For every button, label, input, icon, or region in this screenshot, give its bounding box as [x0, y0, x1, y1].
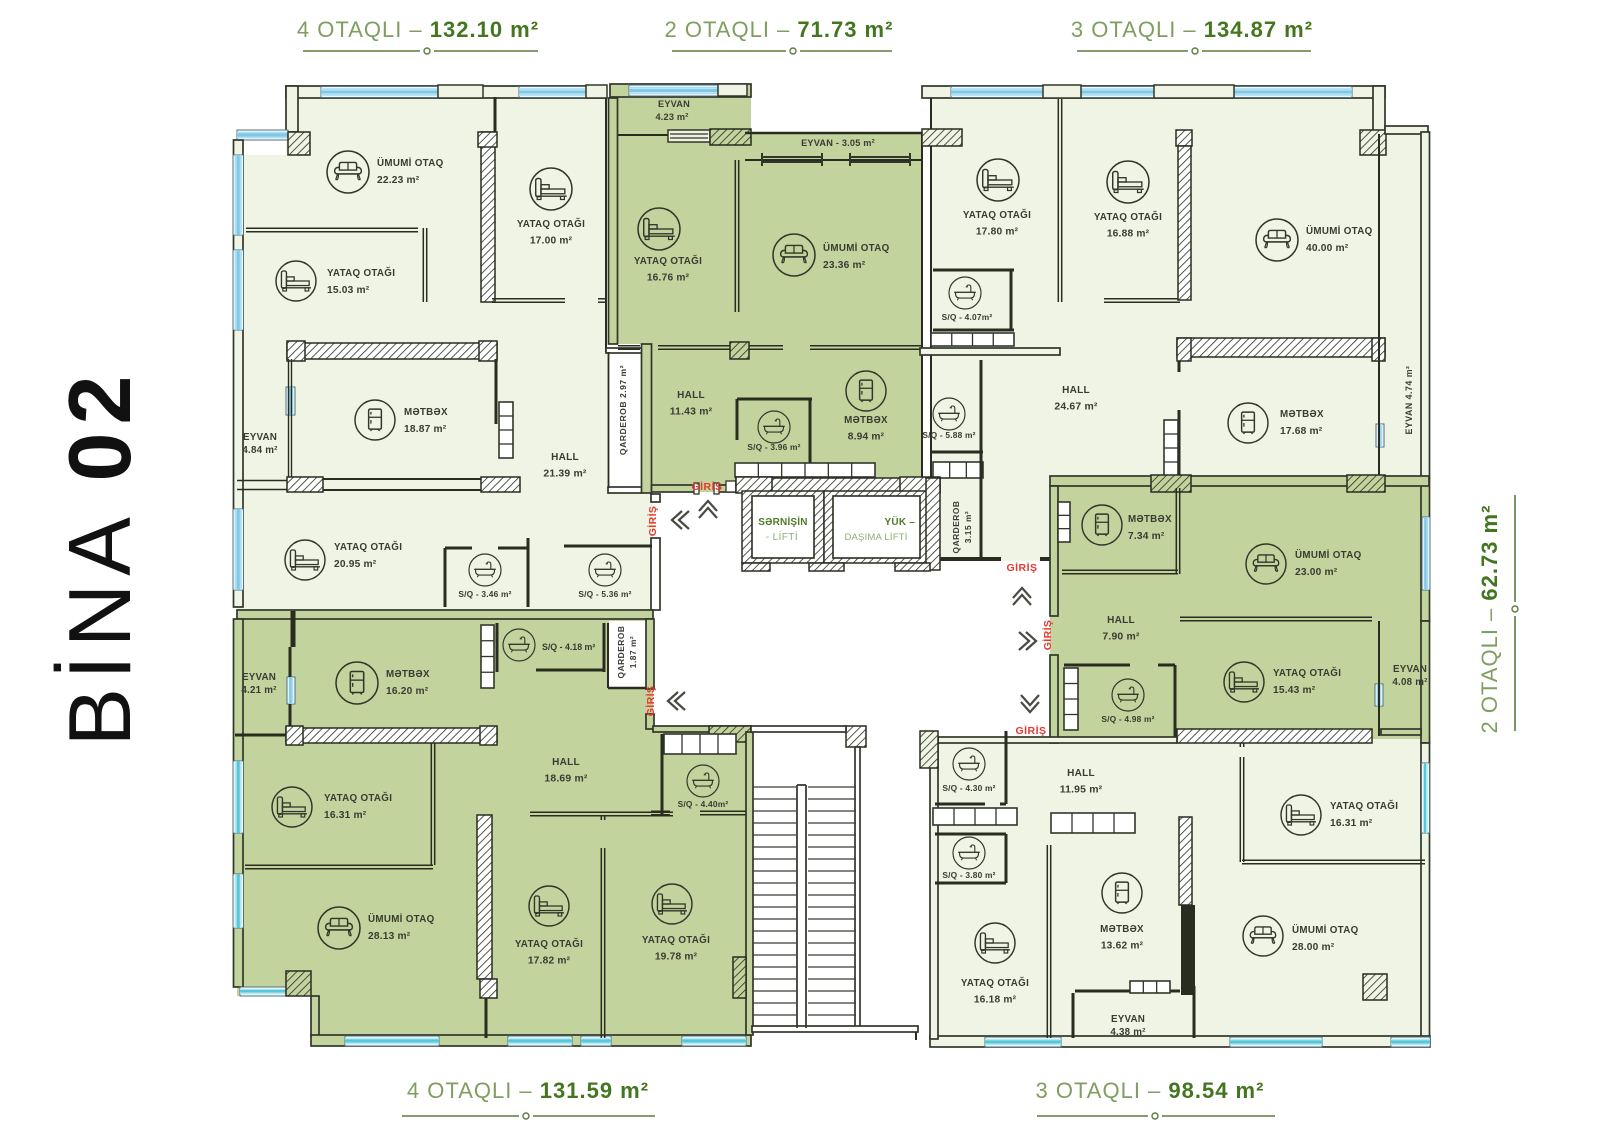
svg-text:EYVAN 4.74 m²: EYVAN 4.74 m² [1404, 366, 1414, 435]
svg-text:15.43 m²: 15.43 m² [1273, 685, 1316, 696]
svg-text:4.08 m²: 4.08 m² [1392, 677, 1428, 688]
svg-text:S/Q - 3.46 m²: S/Q - 3.46 m² [458, 589, 511, 599]
svg-text:17.68 m²: 17.68 m² [1280, 426, 1323, 437]
svg-text:YATAQ OTAĞI: YATAQ OTAĞI [1273, 667, 1341, 679]
svg-text:7.90 m²: 7.90 m² [1102, 632, 1140, 643]
svg-text:YÜK –: YÜK – [885, 515, 916, 528]
svg-text:HALL: HALL [552, 757, 580, 768]
svg-text:EYVAN: EYVAN [658, 99, 690, 109]
svg-text:28.13 m²: 28.13 m² [368, 931, 411, 942]
svg-text:S/Q - 4.18 m²: S/Q - 4.18 m² [542, 642, 595, 652]
svg-text:DAŞIMA LİFTİ: DAŞIMA LİFTİ [844, 532, 907, 543]
svg-text:YATAQ OTAĞI: YATAQ OTAĞI [642, 934, 710, 946]
svg-text:13.62 m²: 13.62 m² [1101, 941, 1144, 952]
svg-text:16.31 m²: 16.31 m² [324, 810, 367, 821]
svg-text:GİRİŞ: GİRİŞ [1006, 561, 1037, 574]
svg-text:23.36 m²: 23.36 m² [823, 260, 866, 271]
svg-text:3 OTAQLI – 134.87 m²: 3 OTAQLI – 134.87 m² [1071, 17, 1313, 42]
svg-text:HALL: HALL [1107, 615, 1135, 626]
svg-text:EYVAN - 3.05 m²: EYVAN - 3.05 m² [801, 138, 875, 148]
svg-text:S/Q - 5.36 m²: S/Q - 5.36 m² [578, 589, 631, 599]
svg-text:16.18 m²: 16.18 m² [974, 995, 1017, 1006]
svg-text:17.00 m²: 17.00 m² [530, 236, 573, 247]
svg-text:YATAQ OTAĞI: YATAQ OTAĞI [634, 255, 702, 267]
svg-text:11.95 m²: 11.95 m² [1060, 785, 1103, 796]
svg-text:YATAQ OTAĞI: YATAQ OTAĞI [334, 541, 402, 553]
svg-text:19.78 m²: 19.78 m² [655, 952, 698, 963]
svg-text:18.69 m²: 18.69 m² [544, 774, 588, 785]
svg-text:MƏTBƏX: MƏTBƏX [1280, 409, 1324, 420]
svg-text:23.00 m²: 23.00 m² [1295, 567, 1338, 578]
svg-text:ÜMUMİ OTAQ: ÜMUMİ OTAQ [1306, 226, 1373, 237]
svg-text:15.03 m²: 15.03 m² [327, 285, 370, 296]
svg-text:40.00 m²: 40.00 m² [1306, 243, 1349, 254]
svg-text:17.82 m²: 17.82 m² [528, 956, 571, 967]
svg-text:ÜMUMİ OTAQ: ÜMUMİ OTAQ [1292, 925, 1359, 936]
svg-text:YATAQ OTAĞI: YATAQ OTAĞI [1330, 800, 1398, 812]
svg-text:BİNA 02: BİNA 02 [50, 368, 149, 747]
svg-text:8.94 m²: 8.94 m² [848, 432, 885, 443]
svg-text:4.84 m²: 4.84 m² [242, 445, 278, 456]
svg-text:HALL: HALL [551, 452, 579, 463]
svg-text:2 OTAQLI – 71.73 m²: 2 OTAQLI – 71.73 m² [665, 17, 894, 42]
svg-text:YATAQ OTAĞI: YATAQ OTAĞI [324, 792, 392, 804]
svg-text:16.76 m²: 16.76 m² [647, 273, 690, 284]
svg-text:SƏRNİŞİN: SƏRNİŞİN [758, 515, 807, 528]
svg-text:4 OTAQLI – 131.59 m²: 4 OTAQLI – 131.59 m² [407, 1078, 649, 1103]
svg-text:ÜMUMİ OTAQ: ÜMUMİ OTAQ [1295, 550, 1362, 561]
svg-text:4 OTAQLI – 132.10 m²: 4 OTAQLI – 132.10 m² [297, 17, 539, 42]
svg-text:ÜMUMİ OTAQ: ÜMUMİ OTAQ [368, 914, 435, 925]
svg-text:7.34 m²: 7.34 m² [1128, 531, 1165, 542]
svg-text:16.20 m²: 16.20 m² [386, 686, 429, 697]
svg-text:ÜMUMİ OTAQ: ÜMUMİ OTAQ [823, 243, 890, 254]
svg-text:GİRİŞ: GİRİŞ [644, 686, 657, 717]
svg-text:18.87 m²: 18.87 m² [404, 424, 447, 435]
svg-text:- LİFTİ: - LİFTİ [766, 530, 798, 543]
svg-text:YATAQ OTAĞI: YATAQ OTAĞI [515, 938, 583, 950]
svg-text:11.43 m²: 11.43 m² [670, 407, 713, 418]
svg-text:EYVAN: EYVAN [1393, 664, 1427, 675]
svg-text:MƏTBƏX: MƏTBƏX [386, 669, 430, 680]
svg-text:QARDEROB 2.97 m²: QARDEROB 2.97 m² [618, 365, 628, 455]
svg-text:YATAQ OTAĞI: YATAQ OTAĞI [327, 267, 395, 279]
svg-text:16.31 m²: 16.31 m² [1330, 818, 1373, 829]
svg-text:MƏTBƏX: MƏTBƏX [1100, 924, 1144, 935]
svg-text:GİRİŞ: GİRİŞ [1041, 620, 1054, 651]
svg-text:MƏTBƏX: MƏTBƏX [844, 415, 888, 426]
svg-text:4.23 m²: 4.23 m² [655, 112, 688, 122]
svg-text:16.88 m²: 16.88 m² [1107, 229, 1150, 240]
svg-text:S/Q - 4.30 m²: S/Q - 4.30 m² [942, 783, 995, 793]
svg-text:21.39 m²: 21.39 m² [543, 469, 587, 480]
svg-text:S/Q - 4.07m²: S/Q - 4.07m² [942, 312, 993, 322]
svg-text:S/Q - 3.96 m²: S/Q - 3.96 m² [747, 442, 800, 452]
svg-text:MƏTBƏX: MƏTBƏX [404, 407, 448, 418]
svg-text:S/Q - 3.80 m²: S/Q - 3.80 m² [942, 870, 995, 880]
svg-text:S/Q - 5.88 m²: S/Q - 5.88 m² [922, 430, 975, 440]
svg-text:ÜMUMİ OTAQ: ÜMUMİ OTAQ [377, 158, 444, 169]
svg-text:4.21 m²: 4.21 m² [241, 685, 277, 696]
svg-text:HALL: HALL [1067, 768, 1095, 779]
svg-text:2 OTAQLI – 62.73 m²: 2 OTAQLI – 62.73 m² [1477, 505, 1502, 734]
svg-text:HALL: HALL [1062, 385, 1090, 396]
svg-text:QARDEROB: QARDEROB [951, 501, 961, 554]
svg-text:YATAQ OTAĞI: YATAQ OTAĞI [1094, 211, 1162, 223]
svg-text:20.95 m²: 20.95 m² [334, 559, 377, 570]
svg-text:MƏTBƏX: MƏTBƏX [1128, 514, 1172, 525]
svg-text:4.38 m²: 4.38 m² [1110, 1027, 1146, 1038]
svg-text:YATAQ OTAĞI: YATAQ OTAĞI [961, 977, 1029, 989]
svg-text:3 OTAQLI – 98.54 m²: 3 OTAQLI – 98.54 m² [1036, 1078, 1265, 1103]
svg-text:1.87 m²: 1.87 m² [628, 636, 638, 668]
svg-text:28.00 m²: 28.00 m² [1292, 942, 1335, 953]
svg-text:S/Q - 4.40m²: S/Q - 4.40m² [678, 799, 729, 809]
svg-text:GİRİŞ: GİRİŞ [691, 480, 722, 493]
svg-text:QARDEROB: QARDEROB [616, 626, 626, 679]
svg-text:22.23 m²: 22.23 m² [377, 175, 420, 186]
svg-text:EYVAN: EYVAN [243, 432, 277, 443]
svg-text:17.80 m²: 17.80 m² [976, 227, 1019, 238]
svg-text:24.67 m²: 24.67 m² [1054, 402, 1098, 413]
svg-text:YATAQ OTAĞI: YATAQ OTAĞI [963, 209, 1031, 221]
svg-text:3.15 m²: 3.15 m² [963, 511, 973, 543]
svg-text:GİRİŞ: GİRİŞ [646, 506, 659, 537]
svg-text:S/Q - 4.98 m²: S/Q - 4.98 m² [1101, 714, 1154, 724]
svg-text:YATAQ OTAĞI: YATAQ OTAĞI [517, 218, 585, 230]
svg-text:EYVAN: EYVAN [242, 672, 276, 683]
svg-text:EYVAN: EYVAN [1111, 1014, 1145, 1025]
svg-text:HALL: HALL [677, 390, 705, 401]
svg-text:GİRİŞ: GİRİŞ [1015, 724, 1046, 737]
